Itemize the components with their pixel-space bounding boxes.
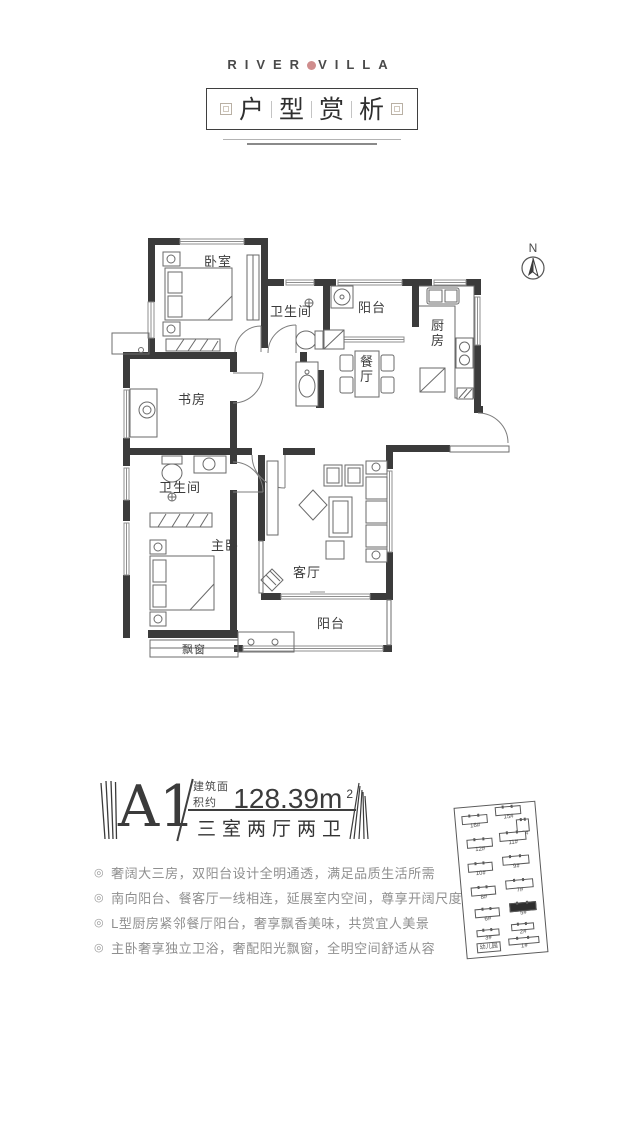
sitemap-buildings: 16#15#13#12#11#10#9#8#7#6#5#3#2#幼儿园1# [454, 801, 549, 960]
title-char: 户 [239, 97, 264, 122]
building-label: 1# [521, 943, 528, 951]
building-16#: 16# [461, 814, 488, 825]
building-3#: 3# [476, 928, 500, 937]
room-label-master: 主卧 [211, 538, 239, 553]
title-underline-thin [223, 139, 401, 140]
room-label-study: 书房 [178, 392, 206, 407]
floorplan: N 卧室 卫生间 阳台 厨房 餐厅 书房 卫生间 主卧 客厅 阳台 飘窗 [105, 232, 560, 672]
building-15#: 15# [495, 805, 522, 816]
area-label: 建筑面积约 [193, 778, 229, 813]
unit-info: A1 建筑面积约 128.39m 2 三室两厅两卫 [98, 772, 390, 852]
title-underline-thick [247, 143, 377, 145]
bullet-icon: ◎ [94, 891, 104, 906]
feature-text: 南向阳台、餐客厅一线相连，延展室内空间，尊享开阔尺度 [111, 891, 462, 906]
feature-item: ◎ L型厨房紧邻餐厅阳台，奢享飘香美味，共赏宜人美景 [94, 916, 464, 931]
building-12#: 12# [466, 838, 493, 849]
building-label: 幼儿园 [478, 942, 501, 952]
compass-icon: N [522, 241, 544, 279]
title-separator [351, 101, 352, 118]
room-label-living: 客厅 [293, 565, 321, 580]
room-label-bathroom-bottom: 卫生间 [159, 480, 201, 495]
page-title: 户 型 赏 析 [206, 88, 418, 130]
bullet-icon: ◎ [94, 916, 104, 931]
building-label: 12# [475, 846, 486, 854]
brand-right: VILLA [318, 57, 396, 72]
room-label-bedroom: 卧室 [204, 254, 232, 269]
building-11#: 11# [499, 831, 527, 842]
unit-area: 建筑面积约 128.39m 2 [193, 778, 353, 813]
brand-seal-icon [307, 61, 316, 70]
title-separator [271, 101, 272, 118]
bullet-icon: ◎ [94, 941, 104, 956]
building-label: 10# [476, 870, 487, 878]
building-label: 15# [503, 814, 514, 822]
building-label: 9# [513, 863, 520, 871]
building-label: 16# [470, 823, 481, 831]
sitemap: 16#15#13#12#11#10#9#8#7#6#5#3#2#幼儿园1# [452, 786, 587, 976]
building-5#: 5# [509, 901, 537, 912]
feature-text: 奢阔大三房，双阳台设计全明通透，满足品质生活所需 [111, 866, 435, 881]
unit-divider [188, 809, 356, 811]
room-label-balcony-top: 阳台 [358, 300, 386, 315]
compass-label: N [529, 241, 538, 255]
building-9#: 9# [502, 854, 530, 865]
brand-logo: RIVERVILLA [0, 57, 623, 72]
building-label: 7# [516, 887, 523, 895]
room-label-balcony-bottom: 阳台 [317, 616, 345, 631]
room-label-kitchen: 厨房 [431, 318, 445, 348]
building-label: 11# [508, 839, 518, 847]
seal-square-icon [391, 103, 403, 115]
room-label-bathroom-top: 卫生间 [270, 304, 312, 319]
feature-item: ◎ 主卧奢享独立卫浴，奢配阳光飘窗，全明空间舒适从容 [94, 941, 464, 956]
building-label: 6# [484, 916, 491, 924]
flyer-page: RIVERVILLA 户 型 赏 析 [0, 0, 623, 1131]
brand-left: RIVER [227, 57, 307, 72]
hatch-right-icon [348, 780, 372, 842]
feature-item: ◎ 南向阳台、餐客厅一线相连，延展室内空间，尊享开阔尺度 [94, 891, 464, 906]
title-char: 赏 [319, 97, 344, 122]
building-label: 8# [480, 894, 487, 902]
feature-item: ◎ 奢阔大三房，双阳台设计全明通透，满足品质生活所需 [94, 866, 464, 881]
room-label-dining: 餐厅 [360, 354, 374, 384]
seal-square-icon [220, 103, 232, 115]
building-1#: 1# [508, 936, 539, 946]
building-10#: 10# [467, 862, 493, 873]
title-separator [311, 101, 312, 118]
room-label-baywindow: 飘窗 [182, 642, 206, 656]
feature-list: ◎ 奢阔大三房，双阳台设计全明通透，满足品质生活所需 ◎ 南向阳台、餐客厅一线相… [94, 866, 464, 966]
building-label: 5# [520, 910, 527, 918]
building-7#: 7# [505, 878, 534, 889]
building-幼儿园: 幼儿园 [476, 941, 501, 953]
hatch-left-icon [98, 780, 118, 842]
building-6#: 6# [474, 907, 500, 918]
building-label: 2# [520, 929, 527, 937]
feature-text: L型厨房紧邻餐厅阳台，奢享飘香美味，共赏宜人美景 [111, 916, 429, 931]
unit-layout: 三室两厅两卫 [188, 814, 356, 841]
building-2#: 2# [511, 922, 535, 931]
title-char: 析 [359, 97, 384, 122]
title-char: 型 [279, 97, 304, 122]
building-8#: 8# [471, 886, 497, 897]
bullet-icon: ◎ [94, 866, 104, 881]
feature-text: 主卧奢享独立卫浴，奢配阳光飘窗，全明空间舒适从容 [111, 941, 435, 956]
